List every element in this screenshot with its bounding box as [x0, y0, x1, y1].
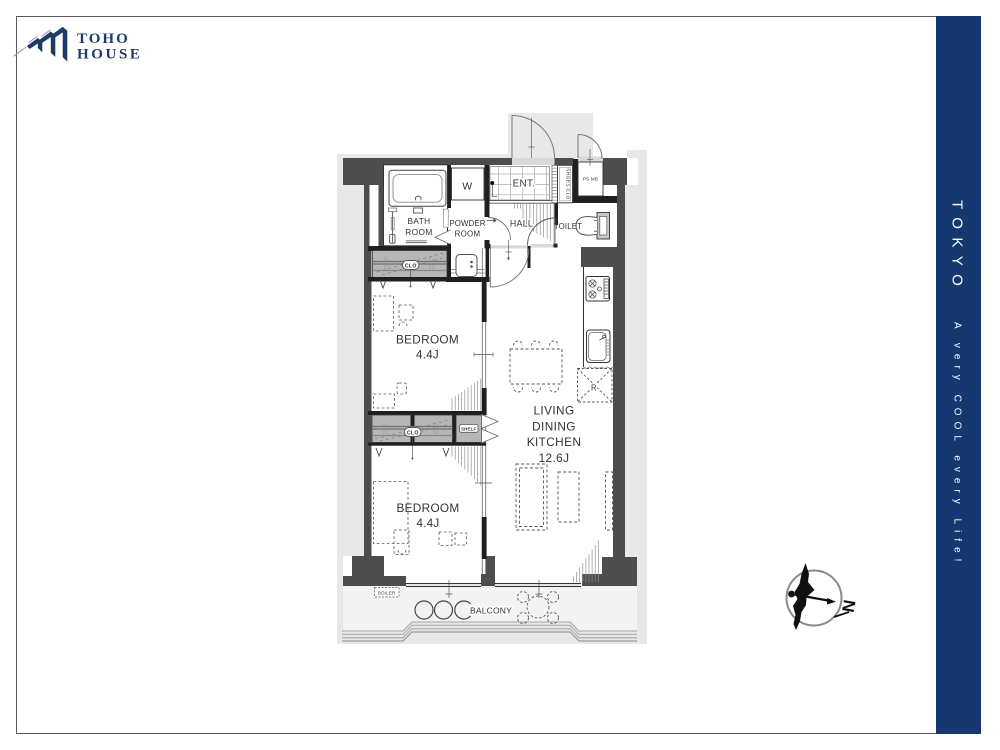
svg-text:12.6J: 12.6J	[539, 451, 570, 465]
svg-text:CLO: CLO	[405, 263, 417, 269]
svg-text:TOKYO: TOKYO	[949, 200, 966, 294]
svg-text:BALCONY: BALCONY	[470, 606, 512, 616]
svg-text:4.4J: 4.4J	[417, 518, 440, 530]
svg-text:BOILER: BOILER	[378, 591, 395, 596]
svg-text:R: R	[591, 384, 597, 393]
svg-text:SHOES CLO: SHOES CLO	[565, 168, 571, 200]
svg-text:CLO: CLO	[407, 430, 419, 436]
svg-text:ROOM: ROOM	[455, 230, 481, 239]
svg-text:BEDROOM: BEDROOM	[396, 333, 459, 347]
svg-text:DINING: DINING	[532, 420, 576, 434]
svg-text:KITCHEN: KITCHEN	[527, 435, 582, 449]
svg-text:A very COOL every Life!: A very COOL every Life!	[952, 322, 963, 567]
svg-text:BATH: BATH	[407, 216, 430, 226]
svg-text:HALL: HALL	[510, 219, 533, 229]
svg-text:POWDER: POWDER	[449, 219, 485, 228]
svg-text:BEDROOM: BEDROOM	[396, 501, 459, 515]
svg-text:W: W	[462, 181, 472, 193]
svg-text:TOHO: TOHO	[77, 31, 130, 47]
svg-text:HOUSE: HOUSE	[77, 47, 143, 63]
svg-text:LIVING: LIVING	[533, 404, 574, 418]
svg-text:PS MB: PS MB	[583, 177, 598, 182]
svg-text:ROOM: ROOM	[405, 227, 432, 237]
svg-text:ENT.: ENT.	[513, 179, 536, 190]
svg-text:4.4J: 4.4J	[416, 350, 439, 362]
svg-text:SHELF: SHELF	[461, 427, 477, 432]
svg-text:TOILET: TOILET	[554, 222, 582, 231]
